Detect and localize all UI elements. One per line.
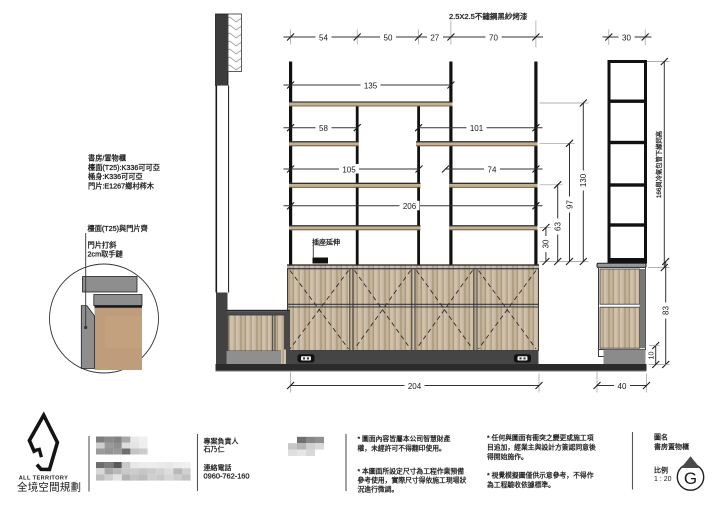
svg-text:比例: 比例 (654, 466, 668, 475)
svg-text:* 圖面內容皆屬本公司智慧財產: * 圖面內容皆屬本公司智慧財產 (358, 434, 451, 443)
svg-text:83: 83 (662, 306, 671, 315)
svg-text:石乃仁: 石乃仁 (204, 445, 225, 454)
svg-text:50: 50 (384, 33, 393, 42)
svg-text:63: 63 (554, 222, 563, 231)
svg-text:圖名: 圖名 (654, 433, 668, 442)
svg-text:2.5X2.5不鏽鋼黑紗烤漆: 2.5X2.5不鏽鋼黑紗烤漆 (449, 11, 528, 21)
svg-text:40: 40 (618, 382, 627, 391)
svg-text:58: 58 (319, 124, 328, 133)
svg-text:目追加，經業主與設計方簽認同意後: 目追加，經業主與設計方簽認同意後 (487, 443, 596, 452)
svg-text:135: 135 (364, 81, 378, 90)
svg-text:檯面(T25)與門片齊: 檯面(T25)與門片齊 (88, 224, 148, 233)
svg-text:為工程驗收依據標準。: 為工程驗收依據標準。 (487, 480, 555, 489)
svg-text:74: 74 (488, 165, 497, 174)
svg-text:97: 97 (565, 200, 574, 209)
svg-text:105: 105 (342, 165, 356, 174)
svg-text:* 視覺模擬圖僅供示意參考，不得作: * 視覺模擬圖僅供示意參考，不得作 (487, 471, 594, 480)
svg-text:166與冷氣包管下緣同高: 166與冷氣包管下緣同高 (654, 131, 663, 198)
svg-text:2cm取手鏈: 2cm取手鏈 (88, 250, 123, 259)
svg-text:桶身:K336可可亞: 桶身:K336可可亞 (88, 172, 143, 181)
svg-text:專案負責人: 專案負責人 (204, 437, 239, 446)
svg-text:權，未經許可不得翻印使用。: 權，未經許可不得翻印使用。 (358, 444, 446, 453)
svg-text:206: 206 (403, 202, 417, 211)
svg-text:30: 30 (622, 33, 631, 42)
svg-text:0960-762-160: 0960-762-160 (204, 472, 250, 481)
svg-text:得開始施作。: 得開始施作。 (487, 452, 528, 461)
svg-text:30: 30 (542, 239, 551, 248)
svg-text:況進行微調。: 況進行微調。 (358, 485, 399, 494)
svg-text:門片:E1267鄉村梣木: 門片:E1267鄉村梣木 (88, 182, 154, 191)
svg-text:插座延伸: 插座延伸 (312, 237, 340, 246)
svg-text:參考使用，實際尺寸得依施工現場狀: 參考使用，實際尺寸得依施工現場狀 (358, 476, 467, 485)
svg-text:204: 204 (408, 382, 422, 391)
svg-text:70: 70 (489, 33, 498, 42)
svg-text:27: 27 (430, 33, 439, 42)
svg-text:* 本圖面所設定尺寸為工程作業預備: * 本圖面所設定尺寸為工程作業預備 (358, 467, 465, 476)
svg-text:101: 101 (470, 124, 484, 133)
svg-text:G: G (684, 469, 697, 488)
svg-text:全境空間規劃: 全境空間規劃 (17, 481, 81, 494)
svg-text:檯面(T25):K336可可亞: 檯面(T25):K336可可亞 (88, 163, 160, 172)
svg-text:書房置物櫃: 書房置物櫃 (654, 442, 689, 451)
svg-text:54: 54 (319, 33, 328, 42)
svg-text:10: 10 (647, 352, 656, 360)
svg-text:門片打斜: 門片打斜 (88, 241, 117, 250)
svg-text:書房/置物櫃: 書房/置物櫃 (88, 154, 126, 163)
svg-text:130: 130 (579, 173, 588, 187)
svg-text:1 : 20: 1 : 20 (654, 476, 672, 483)
svg-text:* 任何與圖面有衝突之變更或施工項: * 任何與圖面有衝突之變更或施工項 (487, 433, 594, 442)
